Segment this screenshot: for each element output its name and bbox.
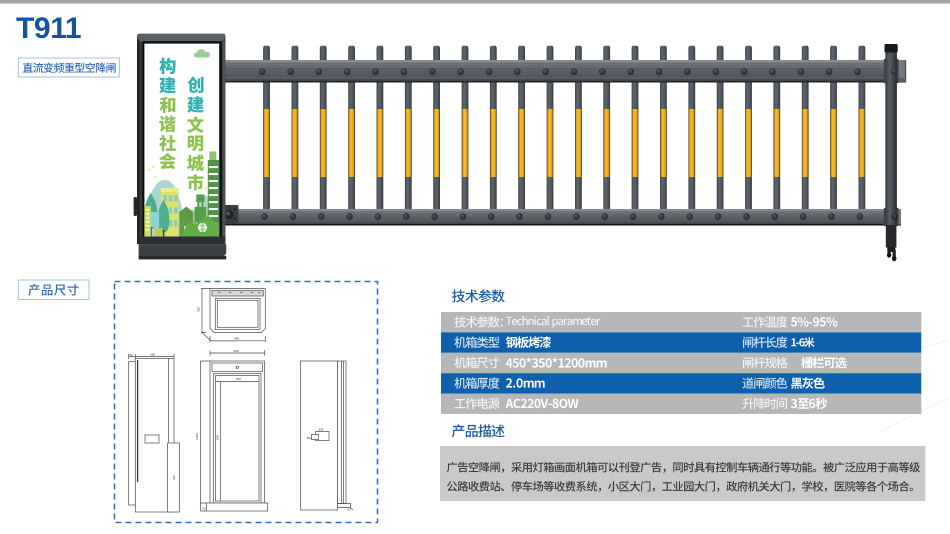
svg-text:910: 910 bbox=[172, 475, 176, 480]
svg-text:900: 900 bbox=[215, 435, 219, 440]
svg-text:450: 450 bbox=[234, 337, 239, 341]
svg-text:508: 508 bbox=[319, 427, 324, 431]
svg-text:350: 350 bbox=[150, 353, 155, 357]
svg-text:352: 352 bbox=[197, 307, 201, 312]
svg-text:504: 504 bbox=[307, 436, 312, 440]
svg-text:T911: T911 bbox=[16, 12, 81, 45]
svg-text:350: 350 bbox=[236, 377, 241, 381]
svg-text:50: 50 bbox=[202, 507, 206, 511]
svg-text:450: 450 bbox=[234, 349, 239, 353]
svg-text:50: 50 bbox=[348, 508, 352, 512]
svg-text:1200: 1200 bbox=[195, 433, 199, 440]
svg-text:50: 50 bbox=[129, 353, 133, 357]
